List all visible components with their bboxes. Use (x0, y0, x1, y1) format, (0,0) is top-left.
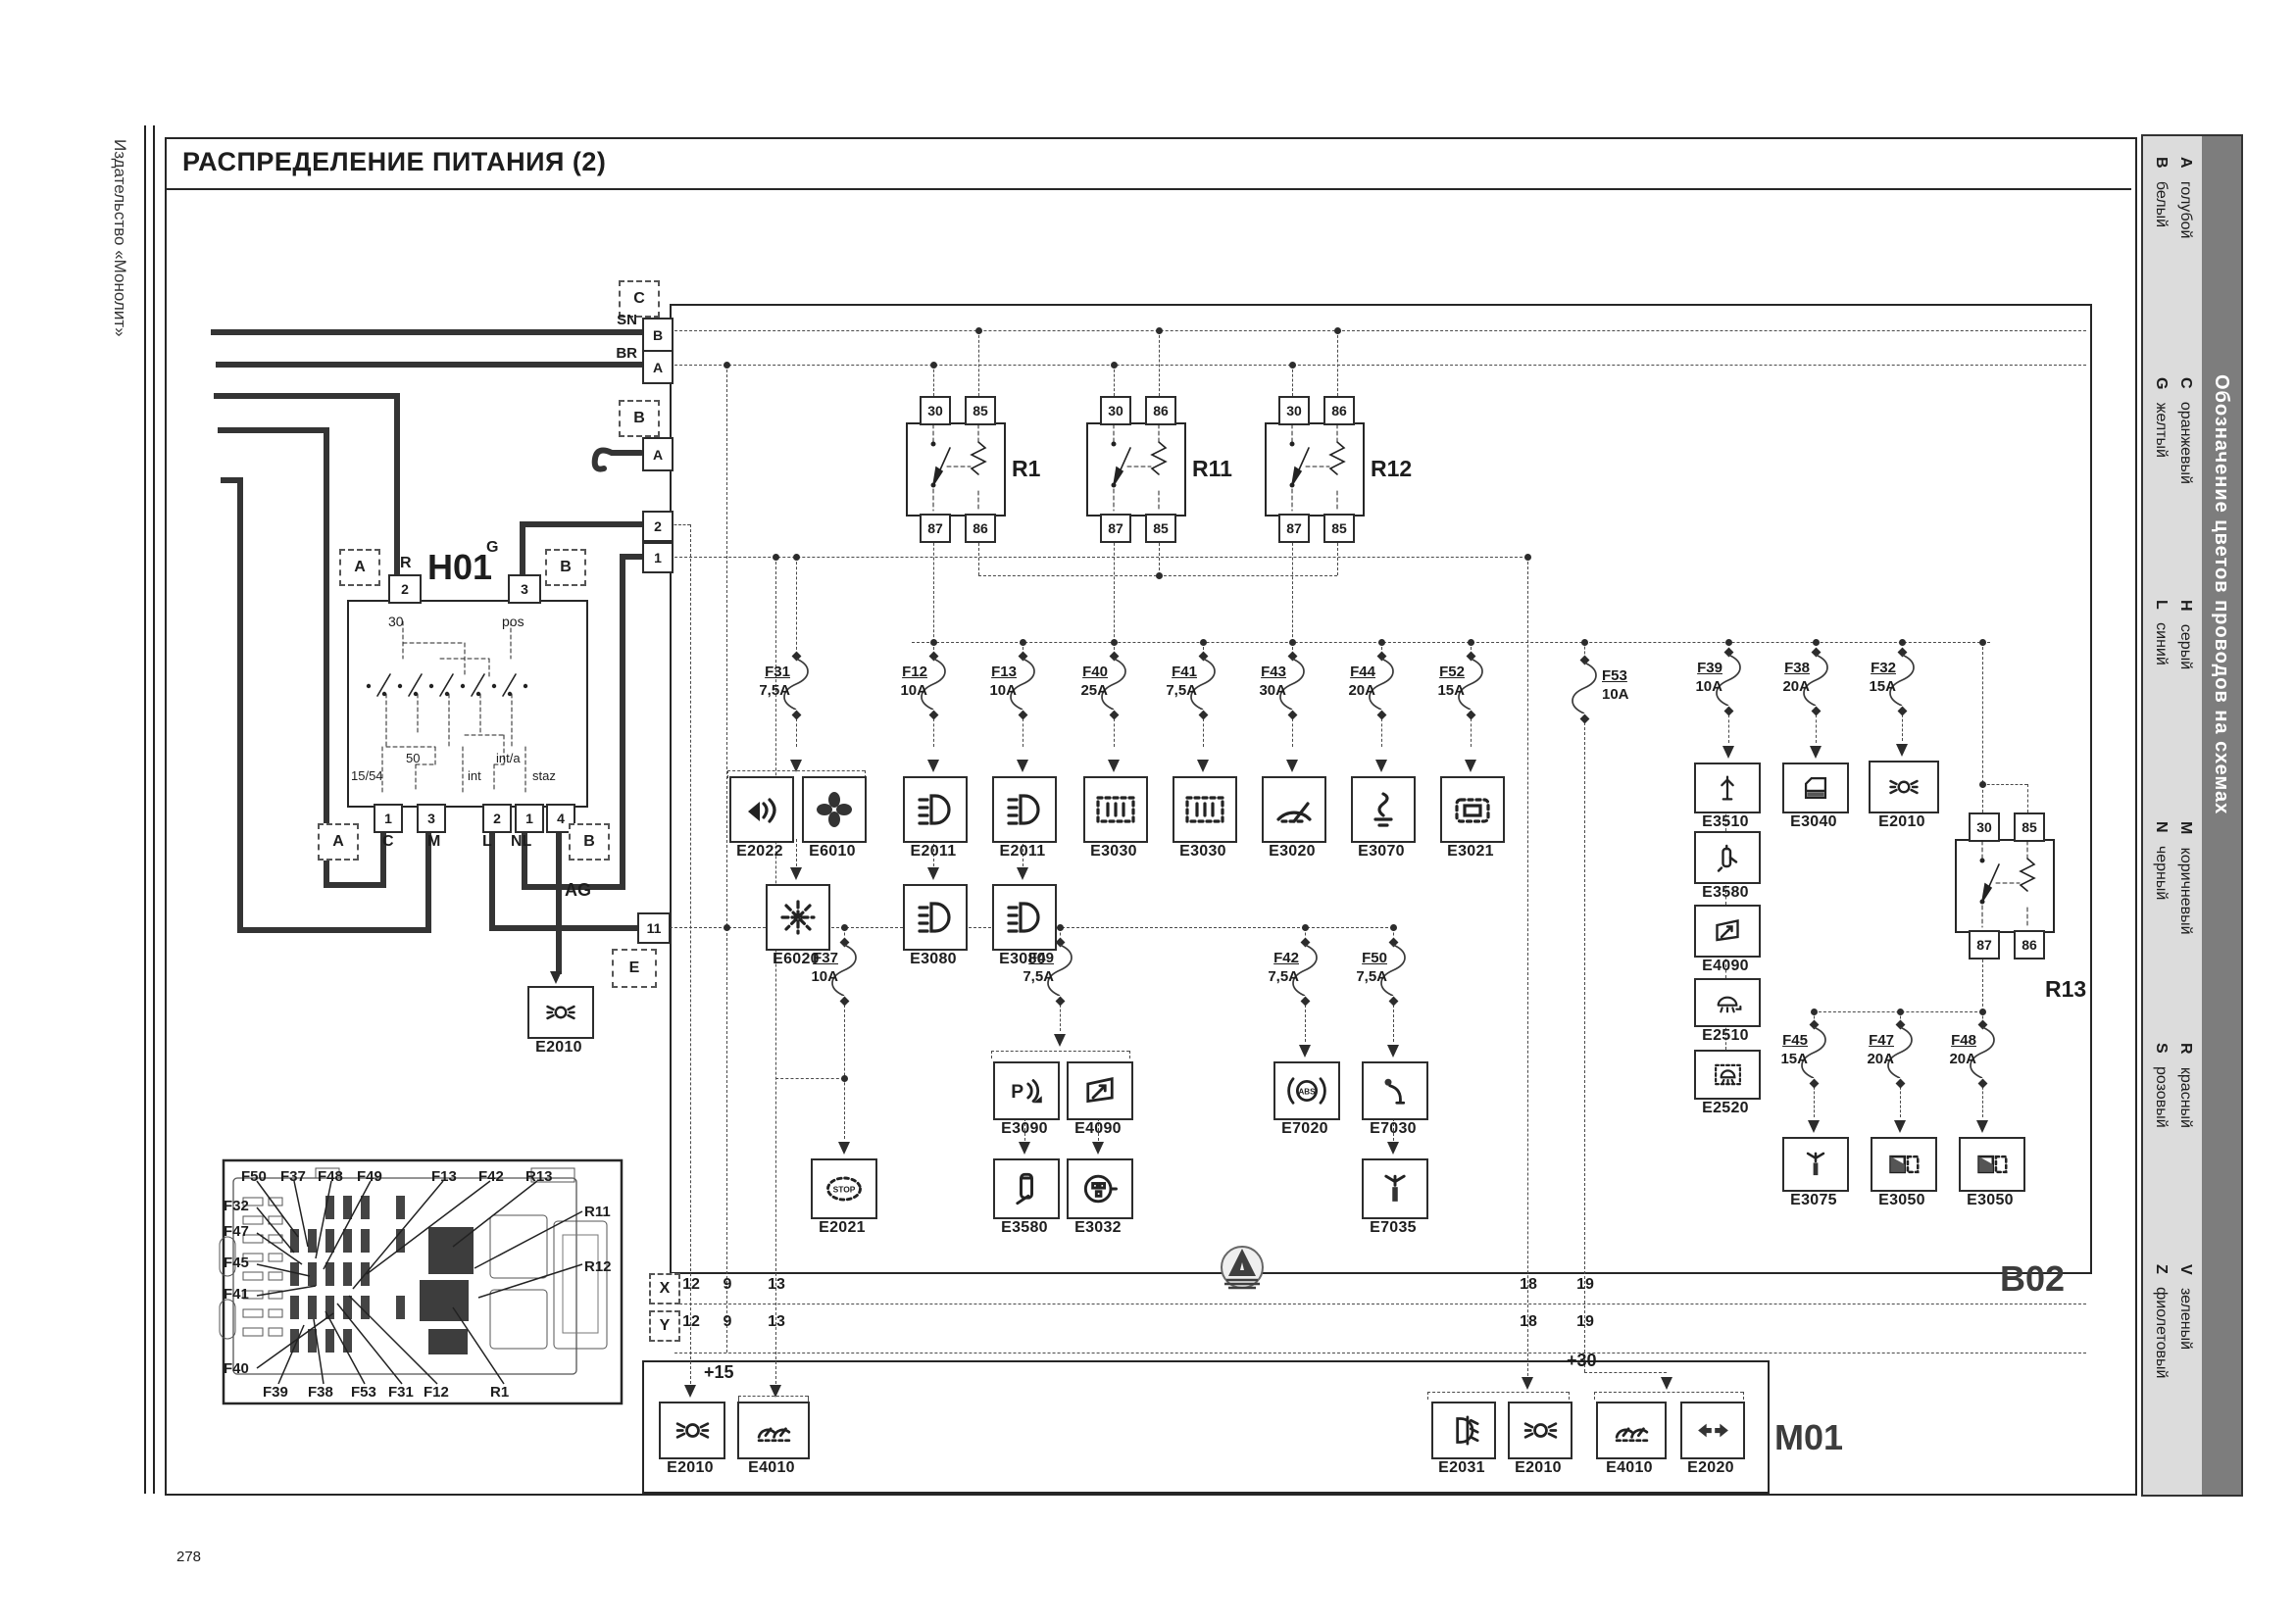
bus-line (1427, 1392, 1428, 1400)
legend-pair: R красныйS розовый (2147, 1043, 2198, 1270)
thick-wire (237, 927, 431, 933)
mirror-icon (1710, 913, 1745, 949)
component-label: E3032 (1053, 1219, 1143, 1237)
component-label: E3075 (1769, 1192, 1859, 1209)
mirror-icon (1079, 1070, 1121, 1111)
svg-text:ABS: ABS (1299, 1088, 1317, 1097)
fuse-lead (796, 557, 797, 655)
fuse-id: F42 (1242, 949, 1299, 967)
component-label: E3070 (1337, 843, 1425, 861)
legend-entry: V зеленый (2173, 1264, 2198, 1492)
fan-icon (811, 786, 858, 833)
lowbeam-icon (1001, 894, 1048, 941)
spray-icon (1797, 1146, 1834, 1183)
bus-line (1292, 365, 1293, 396)
window-icon (1885, 1146, 1922, 1183)
fuse-label: F5310A (1602, 666, 1659, 704)
h01-terminal-label: 15/54 (351, 768, 383, 783)
component-E2011 (903, 776, 968, 843)
thick-wire (620, 559, 625, 890)
relay-pin: 30 (1278, 396, 1310, 425)
component-E7030 (1362, 1061, 1428, 1120)
inset-fuse-label: F47 (224, 1223, 249, 1240)
bus-line (978, 330, 979, 396)
strip-row-label: X (649, 1273, 680, 1304)
lowbeam-icon (912, 786, 959, 833)
junction-dot (930, 639, 937, 646)
connector-pin: A (318, 823, 359, 861)
connector-pin: 1 (374, 804, 403, 833)
hook-wire (580, 435, 643, 480)
component-E7020: ABS (1273, 1061, 1340, 1120)
bus-line (674, 1304, 2086, 1304)
fuse-rating: 7,5A (997, 967, 1054, 986)
fuse-id: F50 (1330, 949, 1387, 967)
junction-dot (1813, 639, 1820, 646)
relay-pin: 85 (1145, 514, 1176, 543)
fuse-rating: 10A (1602, 685, 1659, 704)
bus-line (912, 642, 1990, 643)
strip-number: 19 (1572, 1313, 1598, 1331)
thick-wire (520, 527, 525, 576)
fuse-label: F1310A (960, 663, 1017, 700)
thick-wire (556, 829, 562, 974)
feed-arrow (927, 867, 939, 880)
inset-fuse-label: F32 (224, 1198, 249, 1214)
bus-line (775, 1078, 844, 1079)
component-E2031 (1431, 1402, 1496, 1459)
legend-entry: M коричневый (2173, 821, 2198, 1049)
strip-number: 13 (764, 1276, 789, 1294)
inset-fuse-label: F49 (357, 1168, 382, 1185)
junction-dot (1334, 327, 1341, 334)
feed-arrow (1019, 1142, 1030, 1155)
junction-dot (793, 554, 800, 561)
bus-line (1527, 557, 1528, 1376)
pump-icon (1710, 840, 1745, 875)
fuse-rating: 7,5A (733, 681, 790, 700)
fuse-rating: 7,5A (1242, 967, 1299, 986)
legend-pair: M коричневыйN черный (2147, 821, 2198, 1049)
legend-entry: C оранжевый (2173, 377, 2198, 605)
bus-line (1569, 1392, 1570, 1400)
b02-label: B02 (2000, 1258, 2065, 1300)
relay-pin: 87 (1278, 514, 1310, 543)
component-label: E3510 (1680, 813, 1771, 831)
inset-fuse-label: F37 (280, 1168, 306, 1185)
inset-fuse-label: R13 (525, 1168, 553, 1185)
wire-label: NL (511, 833, 531, 851)
component-E2010 (527, 986, 594, 1039)
inset-fuse-label: F13 (431, 1168, 457, 1185)
lowbeam-icon (1001, 786, 1048, 833)
component-label: E3020 (1248, 843, 1336, 861)
relay-internal-diagram (1086, 422, 1182, 513)
inset-fuse-label: F53 (351, 1384, 376, 1401)
component-label: E3021 (1426, 843, 1515, 861)
component-label: E2011 (889, 843, 977, 861)
relay-pin: 30 (1969, 812, 2000, 842)
component-label: E2010 (1494, 1459, 1582, 1477)
fuse-lead (1584, 717, 1585, 1372)
feed-arrow (790, 867, 802, 880)
fuse-arrow (1808, 1120, 1820, 1133)
component-E4090 (1067, 1061, 1133, 1120)
connector-pin: B (642, 318, 674, 352)
legend-entry: S розовый (2149, 1043, 2173, 1270)
fuse-rating: 25A (1051, 681, 1108, 700)
fuse-rating: 15A (1408, 681, 1465, 700)
fuse-label: F4420A (1319, 663, 1375, 700)
fuse-id: F43 (1229, 663, 1286, 681)
beam-icon (1886, 769, 1922, 805)
component-label: E3030 (1159, 843, 1247, 861)
legend-entry: H серый (2173, 600, 2198, 827)
fuse-rating: 10A (871, 681, 927, 700)
legend-entry: Z фиолетовый (2149, 1264, 2173, 1492)
bus-line (670, 330, 2086, 331)
wire-label: BR (588, 345, 637, 362)
inset-fuse-label: F48 (318, 1168, 343, 1185)
relay-label: R13 (2045, 976, 2086, 1003)
fuse-arrow (1017, 760, 1028, 772)
component-label: E3040 (1769, 813, 1859, 831)
component-E3070 (1351, 776, 1416, 843)
bus-line (2027, 784, 2028, 812)
h01-terminal-label: 50 (406, 751, 420, 765)
component-E3032 (1067, 1158, 1133, 1219)
column-icon (1374, 1070, 1416, 1111)
component-E3021 (1440, 776, 1505, 843)
component-E2010 (1869, 761, 1939, 813)
fuse-rating: 15A (1839, 677, 1896, 696)
component-E4090 (1694, 905, 1761, 958)
strip-number: 9 (715, 1313, 740, 1331)
lighter-icon (1360, 786, 1407, 833)
bus-line (1594, 1392, 1743, 1393)
fuse-arrow (1299, 1045, 1311, 1058)
fuse-arrow (927, 760, 939, 772)
fuse-label: F4820A (1920, 1031, 1976, 1068)
fuse-rating: 30A (1229, 681, 1286, 700)
h01-terminal-label: int/a (496, 751, 521, 765)
bus-line (1337, 330, 1338, 396)
junction-dot (1289, 362, 1296, 369)
junction-dot (1057, 924, 1064, 931)
fuse-id: F53 (1602, 666, 1659, 685)
connector-pin: 1 (642, 542, 674, 573)
component-label: E4010 (1582, 1459, 1676, 1477)
inset-fuse-label: F50 (241, 1168, 267, 1185)
component-label: E2010 (514, 1039, 604, 1057)
thick-wire (218, 427, 327, 433)
inset-fuse-label: F41 (224, 1286, 249, 1303)
component-E2510 (1694, 978, 1761, 1027)
wire-label: M (427, 833, 440, 851)
fuse-label: F417,5A (1140, 663, 1197, 700)
page-number: 278 (176, 1549, 201, 1565)
fusebox-inset-drawing (218, 1153, 629, 1411)
title-underline (167, 188, 2131, 190)
fuse-label: F5215A (1408, 663, 1465, 700)
inset-fuse-label: F31 (388, 1384, 414, 1401)
dome-icon (1712, 987, 1743, 1018)
fuse-arrow (1976, 1120, 1988, 1133)
inset-fuse-label: F40 (224, 1360, 249, 1377)
strip-number: 9 (715, 1276, 740, 1294)
socket-icon (1449, 786, 1496, 833)
bus-line (933, 365, 934, 396)
bus-line (1427, 1392, 1569, 1393)
component-E3030 (1083, 776, 1148, 843)
relay-pin: 85 (1323, 514, 1355, 543)
bus-line (690, 524, 691, 1384)
fuse-label: F3215A (1839, 659, 1896, 696)
junction-dot (724, 362, 730, 369)
component-label: E2520 (1680, 1100, 1771, 1117)
component-E2011 (992, 776, 1057, 843)
strip-row-label: Y (649, 1310, 680, 1342)
junction-dot (1979, 781, 1986, 788)
connector-pin: B (619, 400, 660, 437)
fuse-label: F427,5A (1242, 949, 1299, 986)
connector-pin: 3 (417, 804, 446, 833)
connector-pin: A (642, 350, 674, 384)
component-E4010 (737, 1402, 810, 1459)
component-E3050 (1871, 1137, 1937, 1192)
turns-icon (1693, 1410, 1733, 1451)
strip-number: 18 (1516, 1313, 1541, 1331)
legend-pair: H серыйL синий (2147, 600, 2198, 827)
cluster-icon (1092, 786, 1139, 833)
wire-label: L (482, 833, 492, 851)
relay-internal-diagram (906, 422, 1002, 513)
component-E3040 (1782, 763, 1849, 813)
junction-dot (1899, 639, 1906, 646)
component-label: E4010 (724, 1459, 820, 1477)
fuse-rating: 20A (1837, 1050, 1894, 1068)
fuse-id: F31 (733, 663, 790, 681)
junction-dot (1378, 639, 1385, 646)
component-label: E6010 (788, 843, 876, 861)
bus-line (1114, 365, 1115, 396)
bus-line (670, 365, 2086, 366)
m01-label: M01 (1774, 1417, 1843, 1458)
bus-line (1159, 330, 1160, 396)
relay-pin: 85 (965, 396, 996, 425)
fuse-id: F48 (1920, 1031, 1976, 1050)
connector-pin: B (545, 549, 586, 586)
inset-fuse-label: F12 (424, 1384, 449, 1401)
thick-wire (520, 521, 644, 527)
connector-pin: B (569, 823, 610, 861)
junction-dot (1289, 639, 1296, 646)
h01-label: H01 (427, 547, 492, 588)
component-E6010 (802, 776, 867, 843)
h01-terminal-label: int (468, 768, 481, 783)
fuse-arrow (1197, 760, 1209, 772)
inset-fuse-label: F42 (478, 1168, 504, 1185)
thick-wire (216, 362, 642, 368)
strip-number: 13 (764, 1313, 789, 1331)
component-label: E4090 (1680, 958, 1771, 975)
thick-wire (489, 925, 639, 931)
fuse-arrow (1375, 760, 1387, 772)
connector-pin: 11 (637, 912, 671, 944)
component-E2021: STOP (811, 1158, 877, 1219)
wire-label: AG (565, 880, 591, 901)
relay-pin: 30 (920, 396, 951, 425)
junction-dot (1390, 924, 1397, 931)
fuse-id: F12 (871, 663, 927, 681)
fuse-rating: 10A (960, 681, 1017, 700)
relay-internal-diagram (1955, 839, 2051, 929)
inset-fuse-label: R11 (584, 1204, 611, 1220)
legend-pair: C оранжевыйG желтый (2147, 377, 2198, 605)
lowbeam-icon (912, 894, 959, 941)
fuse-arrow (1286, 760, 1298, 772)
publisher-text: Издательство «Монолит» (110, 139, 129, 337)
wire-label: SN (588, 312, 637, 328)
feed-arrow (1661, 1377, 1672, 1390)
bus-line (1337, 538, 1338, 575)
gauge-icon (754, 1410, 794, 1451)
thick-wire (214, 393, 400, 399)
fuse-arrow (1054, 1034, 1066, 1047)
fuse-rating: 20A (1319, 681, 1375, 700)
component-label: E2010 (1855, 813, 1949, 831)
fuse-rating: 15A (1751, 1050, 1808, 1068)
bus-line (978, 538, 979, 575)
component-E3090: P (993, 1061, 1060, 1120)
legend-pair: V зеленыйZ фиолетовый (2147, 1264, 2198, 1492)
strip-number: 19 (1572, 1276, 1598, 1294)
relay-internal-diagram (1265, 422, 1361, 513)
legend-pair: A голубойB белый (2147, 157, 2198, 384)
junction-dot (1581, 639, 1588, 646)
connector-pin: A (339, 549, 380, 586)
h01-terminal-label: 30 (388, 614, 404, 629)
component-E3510 (1694, 763, 1761, 813)
cluster-icon (1181, 786, 1228, 833)
legend-entry: R красный (2173, 1043, 2198, 1270)
component-label: E2020 (1667, 1459, 1755, 1477)
junction-dot (1979, 1009, 1986, 1015)
relay-pin: 87 (920, 514, 951, 543)
fuse-id: F38 (1753, 659, 1810, 677)
thick-wire (237, 477, 243, 933)
plus30-label: +30 (1567, 1351, 1597, 1371)
component-E3020 (1262, 776, 1326, 843)
strip-number: 18 (1516, 1276, 1541, 1294)
relay-label: R1 (1012, 456, 1040, 482)
bus-line (1129, 1051, 1130, 1058)
component-E2020 (1680, 1402, 1745, 1459)
fuse-arrow (1387, 1045, 1399, 1058)
abs-icon: ABS (1286, 1070, 1327, 1111)
feed-arrow (1387, 1142, 1399, 1155)
fuse-element fuse-F53 (1571, 663, 1598, 714)
junction-dot (1468, 639, 1474, 646)
gauge-icon (1612, 1410, 1652, 1451)
window-icon (1973, 1146, 2011, 1183)
legend-title: Обозначение цветов проводов на схемах (2210, 374, 2232, 814)
fuse-label: F507,5A (1330, 949, 1387, 986)
connector-pin: 1 (515, 804, 544, 833)
fuse-label: F317,5A (733, 663, 790, 700)
bus-line (727, 770, 728, 778)
junction-dot (1020, 639, 1026, 646)
thick-wire (394, 393, 400, 576)
junction-dot (773, 554, 779, 561)
psensor-icon: P (1006, 1070, 1047, 1111)
component-E3030 (1173, 776, 1237, 843)
fuse-label: F4720A (1837, 1031, 1894, 1068)
relay-pin: 30 (1100, 396, 1131, 425)
fuse-lead (844, 1000, 845, 1139)
fog-icon (1444, 1410, 1484, 1451)
component-E3580 (993, 1158, 1060, 1219)
fuse-id: F40 (1051, 663, 1108, 681)
bus-line (1594, 1392, 1595, 1400)
component-label: E7030 (1348, 1120, 1438, 1138)
plus15-label: +15 (704, 1362, 734, 1383)
component-label: E7020 (1260, 1120, 1350, 1138)
component-E7035 (1362, 1158, 1428, 1219)
component-E3075 (1782, 1137, 1849, 1192)
plug-icon (1078, 1167, 1122, 1210)
scanned-wiring-diagram-page: Издательство «Монолит» 278 РАСПРЕДЕЛЕНИЕ… (0, 0, 2296, 1624)
junction-dot (1156, 327, 1163, 334)
bus-line (1982, 955, 1983, 1011)
fuse-arrow (1810, 746, 1822, 759)
component-label: E2510 (1680, 1027, 1771, 1045)
junction-dot (1111, 362, 1118, 369)
junction-dot (930, 362, 937, 369)
junction-dot (1156, 572, 1163, 579)
bus-line (1292, 538, 1293, 642)
thick-wire (324, 427, 329, 888)
component-label: E3080 (978, 951, 1067, 968)
connector-pin: 2 (482, 804, 512, 833)
fuse-rating: 10A (1666, 677, 1722, 696)
fuse-arrow (1896, 744, 1908, 757)
dome2-icon (1712, 1058, 1744, 1091)
h01-terminal-label: staz (532, 768, 556, 783)
fuse-label: F3820A (1753, 659, 1810, 696)
wiper-icon (1271, 786, 1318, 833)
ac-icon (774, 894, 822, 941)
component-label: E6020 (752, 951, 840, 968)
beam-icon (1521, 1410, 1561, 1451)
legend-entry: N черный (2149, 821, 2173, 1049)
svg-text:P: P (1011, 1082, 1023, 1103)
component-label: E3050 (1945, 1192, 2035, 1209)
component-label: E2031 (1418, 1459, 1506, 1477)
bus-line (1114, 538, 1115, 642)
legend-entry: L синий (2149, 600, 2173, 827)
relay-pin: 86 (1323, 396, 1355, 425)
component-label: E3030 (1070, 843, 1158, 861)
wire-label: R (400, 555, 412, 572)
relay-pin: 87 (1100, 514, 1131, 543)
legend-entry: G желтый (2149, 377, 2173, 605)
component-label: E3050 (1857, 1192, 1947, 1209)
fuse-rating: 10A (781, 967, 838, 986)
wire-label: G (486, 539, 498, 557)
fuse-arrow (1722, 746, 1734, 759)
junction-dot (1725, 639, 1732, 646)
